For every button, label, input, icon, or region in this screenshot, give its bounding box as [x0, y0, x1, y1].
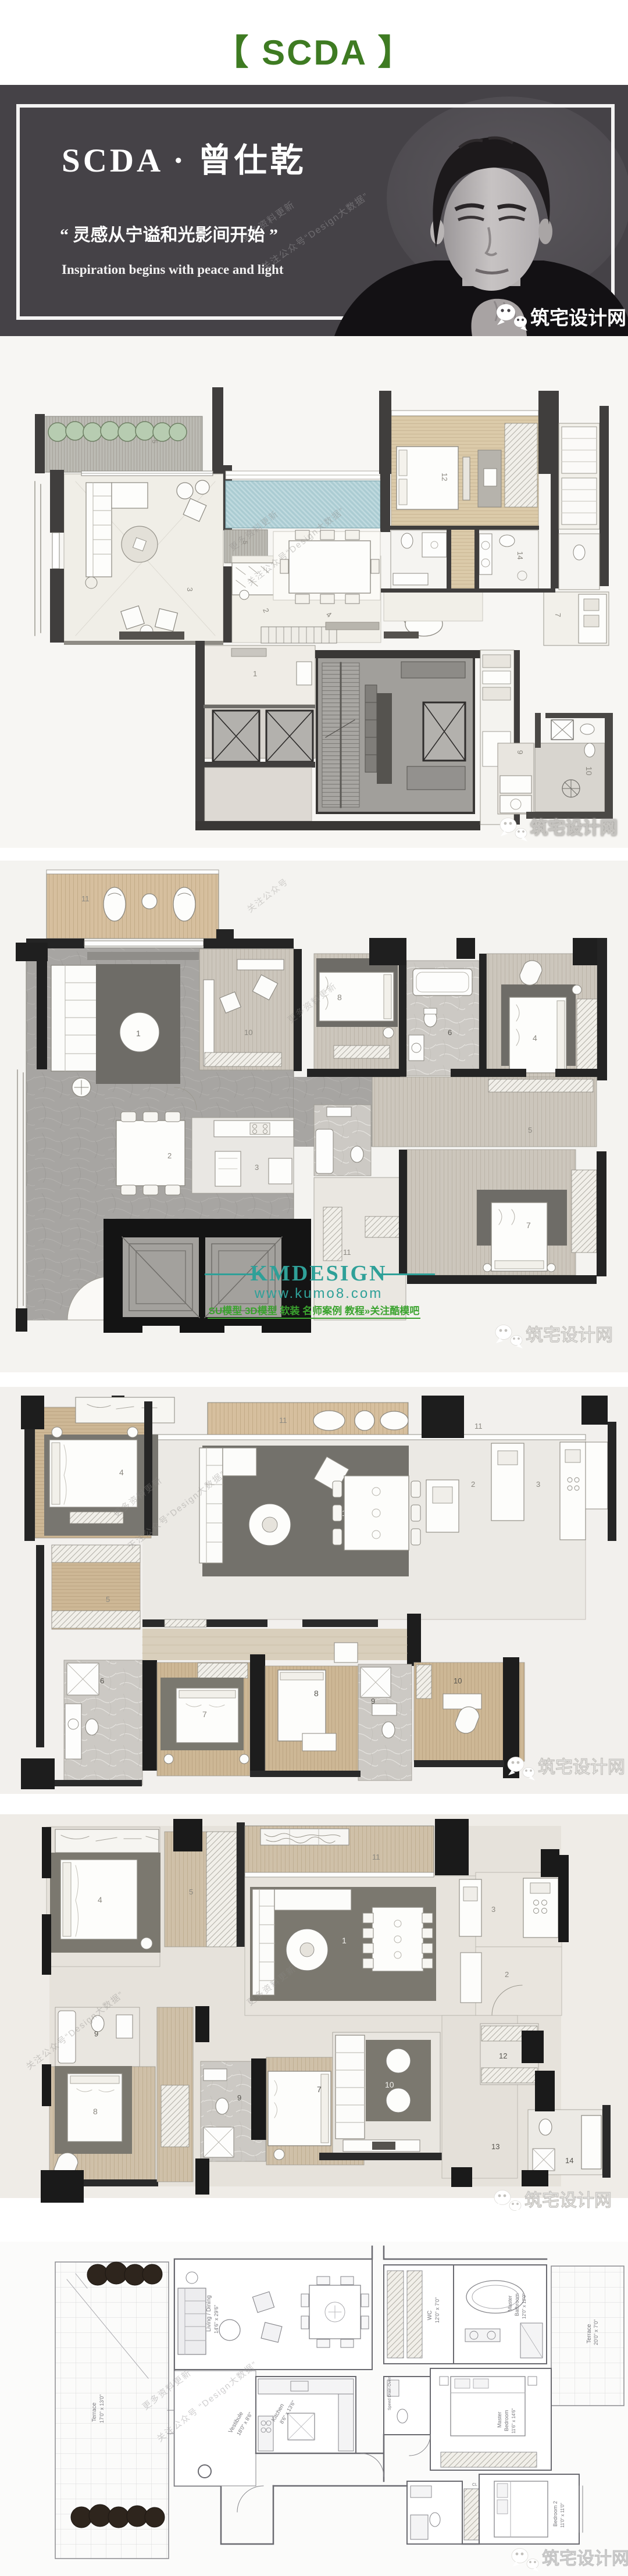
svg-text:5: 5: [106, 1595, 110, 1604]
svg-text:4: 4: [98, 1895, 102, 1904]
svg-text:6: 6: [448, 1028, 452, 1037]
svg-text:WC: WC: [427, 2310, 433, 2320]
svg-text:8: 8: [93, 2107, 98, 2116]
svg-text:10: 10: [244, 1028, 252, 1037]
svg-text:14'6" x 29'6": 14'6" x 29'6": [213, 2305, 219, 2334]
svg-text:14: 14: [565, 2156, 573, 2165]
svg-text:9: 9: [237, 2093, 241, 2102]
svg-text:10: 10: [385, 2080, 394, 2089]
svg-text:www.kumo8.com: www.kumo8.com: [254, 1286, 383, 1301]
svg-text:8: 8: [314, 1689, 319, 1698]
svg-text:5: 5: [528, 1126, 532, 1134]
svg-text:Terrace: Terrace: [586, 2324, 593, 2343]
svg-text:9: 9: [371, 1697, 375, 1706]
svg-text:11: 11: [474, 1422, 483, 1430]
svg-text:Bathroom: Bathroom: [514, 2293, 520, 2316]
svg-text:6: 6: [100, 1676, 104, 1685]
svg-text:20'0" x 7'0": 20'0" x 7'0": [593, 2320, 599, 2345]
svg-text:2: 2: [505, 1970, 509, 1979]
svg-text:12: 12: [440, 473, 449, 481]
svg-text:Bedroom: Bedroom: [504, 2410, 509, 2431]
svg-text:12'0" x 7'0": 12'0" x 7'0": [434, 2297, 440, 2323]
svg-text:KMDESIGN: KMDESIGN: [250, 1261, 387, 1286]
svg-text:1: 1: [136, 1029, 141, 1038]
svg-text:4: 4: [533, 1033, 537, 1043]
svg-text:筑宅设计网: 筑宅设计网: [538, 1757, 625, 1777]
svg-text:7: 7: [202, 1710, 207, 1719]
svg-text:筑宅设计网: 筑宅设计网: [526, 1325, 613, 1345]
svg-text:11'0" x 11'0": 11'0" x 11'0": [560, 2503, 565, 2528]
svg-text:3: 3: [536, 1480, 540, 1489]
svg-text:7: 7: [526, 1221, 531, 1230]
svg-text:4: 4: [119, 1468, 124, 1477]
svg-text:Inspiration begins with peace: Inspiration begins with peace and light: [62, 262, 284, 277]
svg-text:2: 2: [471, 1480, 475, 1489]
svg-text:11'6" x 14'6": 11'6" x 14'6": [511, 2409, 516, 2434]
svg-text:5: 5: [189, 1888, 193, 1896]
svg-text:9: 9: [516, 750, 524, 754]
svg-text:2: 2: [167, 1151, 172, 1160]
svg-text:SU模型 3D模型 软装 名师案例 教程»关注酷模吧: SU模型 3D模型 软装 名师案例 教程»关注酷模吧: [209, 1305, 420, 1316]
svg-text:CL: CL: [472, 2483, 477, 2487]
svg-text:7: 7: [317, 2085, 322, 2094]
svg-text:11: 11: [81, 894, 90, 903]
svg-text:Master: Master: [497, 2411, 502, 2428]
svg-text:5: 5: [151, 440, 159, 444]
svg-text:Speed Drain Oven: Speed Drain Oven: [388, 2377, 392, 2410]
svg-text:17'0" x 13'0": 17'0" x 13'0": [99, 2395, 105, 2423]
svg-text:11: 11: [372, 1853, 380, 1861]
svg-text:3: 3: [185, 587, 194, 591]
svg-text:7: 7: [554, 613, 562, 617]
svg-text:筑宅设计网: 筑宅设计网: [530, 818, 618, 838]
svg-text:Living / Dining: Living / Dining: [206, 2295, 212, 2332]
svg-text:3: 3: [255, 1163, 259, 1172]
svg-text:11: 11: [279, 1416, 287, 1425]
svg-text:3: 3: [491, 1905, 495, 1914]
svg-text:10: 10: [584, 766, 594, 776]
svg-text:8: 8: [337, 993, 342, 1002]
svg-text:1: 1: [253, 669, 257, 678]
svg-text:13: 13: [491, 2142, 499, 2151]
svg-text:11: 11: [343, 1248, 351, 1257]
svg-text:1: 1: [342, 1936, 347, 1945]
svg-text:9: 9: [94, 2029, 98, 2038]
svg-text:筑宅设计网: 筑宅设计网: [542, 2549, 628, 2568]
svg-text:筑宅设计网: 筑宅设计网: [530, 307, 626, 329]
svg-text:14: 14: [516, 551, 524, 559]
svg-text:Bedroom 2: Bedroom 2: [552, 2501, 558, 2527]
svg-text:Terrace: Terrace: [91, 2402, 98, 2422]
svg-text:筑宅设计网: 筑宅设计网: [524, 2190, 612, 2210]
svg-text:SCDA · 曾仕乾: SCDA · 曾仕乾: [62, 142, 306, 179]
svg-text:12'0" x 12'0": 12'0" x 12'0": [522, 2293, 527, 2319]
svg-text:Master: Master: [507, 2295, 513, 2311]
svg-text:12: 12: [499, 2051, 507, 2060]
svg-text:10: 10: [454, 1676, 462, 1685]
